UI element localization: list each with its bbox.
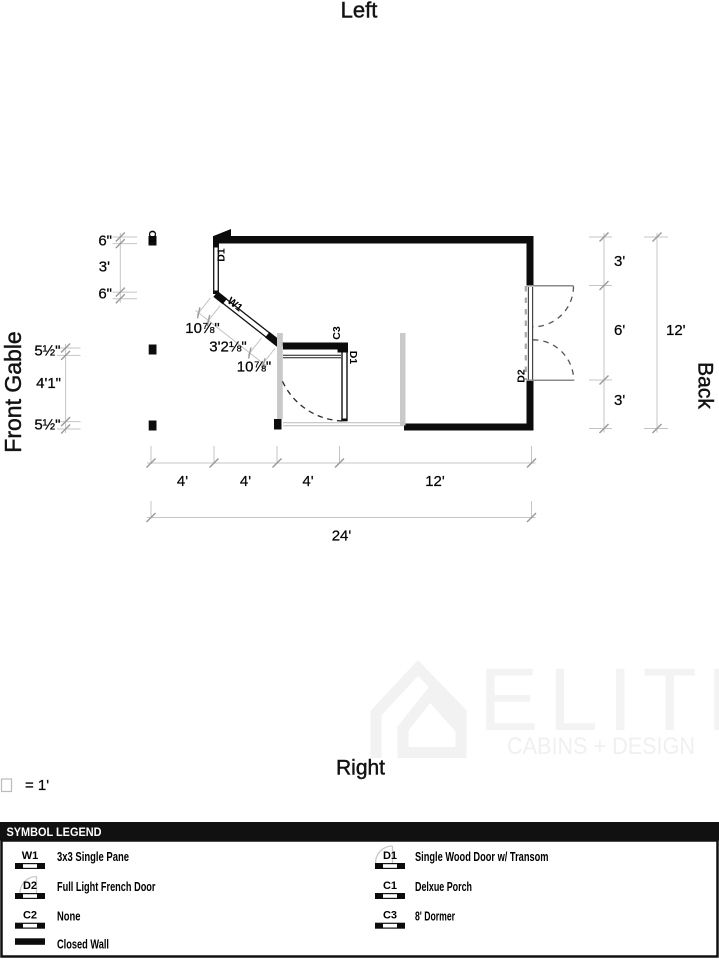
svg-text:C1: C1 bbox=[383, 880, 397, 892]
svg-text:W1: W1 bbox=[22, 850, 39, 862]
svg-text:= 1': = 1' bbox=[25, 777, 49, 794]
svg-text:C3: C3 bbox=[383, 910, 397, 922]
svg-text:12': 12' bbox=[666, 322, 686, 339]
svg-text:Left: Left bbox=[341, 0, 378, 23]
svg-text:CABINS + DESIGN: CABINS + DESIGN bbox=[507, 733, 695, 760]
svg-text:10⅞": 10⅞" bbox=[237, 359, 272, 376]
svg-text:4'1": 4'1" bbox=[36, 375, 61, 392]
svg-text:3': 3' bbox=[614, 253, 625, 270]
svg-text:24': 24' bbox=[332, 528, 352, 545]
svg-text:6": 6" bbox=[98, 286, 112, 303]
svg-text:None: None bbox=[57, 910, 81, 924]
svg-text:Back: Back bbox=[694, 362, 717, 409]
svg-text:Single Wood Door w/ Transom: Single Wood Door w/ Transom bbox=[415, 850, 549, 864]
svg-text:4': 4' bbox=[177, 473, 188, 490]
svg-text:C2: C2 bbox=[23, 910, 37, 922]
svg-text:6': 6' bbox=[614, 322, 625, 339]
svg-text:4': 4' bbox=[240, 473, 251, 490]
svg-text:6": 6" bbox=[98, 233, 112, 250]
svg-text:Closed Wall: Closed Wall bbox=[57, 938, 109, 952]
svg-text:D1: D1 bbox=[383, 850, 397, 862]
svg-text:8' Dormer: 8' Dormer bbox=[415, 910, 455, 924]
svg-text:3': 3' bbox=[614, 392, 625, 409]
svg-text:Front Gable: Front Gable bbox=[0, 331, 26, 452]
svg-text:C1: C1 bbox=[146, 230, 158, 244]
svg-text:Delxue Porch: Delxue Porch bbox=[415, 880, 472, 894]
svg-text:D2: D2 bbox=[516, 369, 528, 383]
svg-text:Right: Right bbox=[336, 757, 385, 780]
svg-text:3'2⅛": 3'2⅛" bbox=[209, 339, 246, 356]
svg-text:4': 4' bbox=[302, 473, 313, 490]
svg-text:SYMBOL LEGEND: SYMBOL LEGEND bbox=[7, 827, 102, 839]
svg-text:D1: D1 bbox=[347, 351, 359, 365]
svg-text:10⅞": 10⅞" bbox=[185, 320, 220, 337]
svg-text:3x3 Single Pane: 3x3 Single Pane bbox=[57, 850, 129, 864]
svg-text:D1: D1 bbox=[216, 248, 228, 262]
svg-text:3': 3' bbox=[99, 259, 110, 276]
svg-text:C3: C3 bbox=[331, 326, 343, 340]
svg-text:5½": 5½" bbox=[34, 343, 60, 360]
svg-text:5½": 5½" bbox=[34, 417, 60, 434]
svg-text:Full Light French Door: Full Light French Door bbox=[57, 880, 156, 894]
svg-text:12': 12' bbox=[425, 473, 445, 490]
svg-text:D2: D2 bbox=[23, 880, 37, 892]
